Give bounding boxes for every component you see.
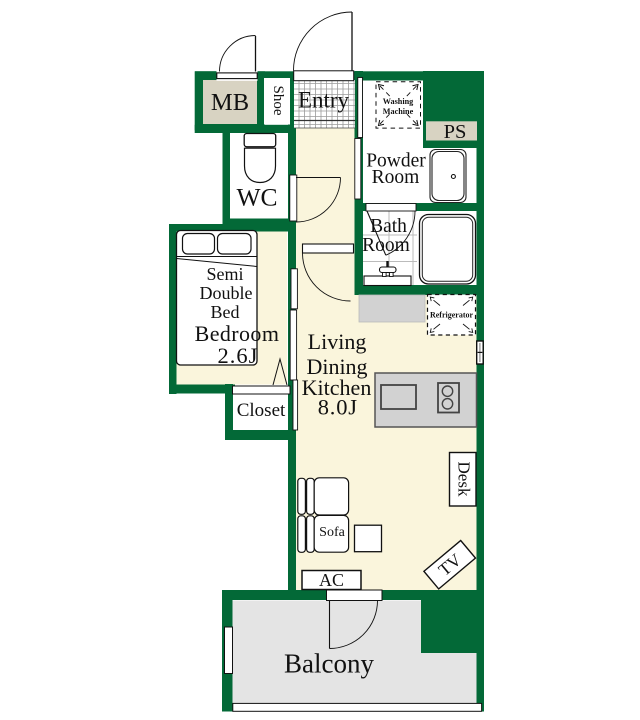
svg-text:Washing: Washing	[383, 97, 414, 106]
svg-text:Sofa: Sofa	[319, 525, 345, 540]
svg-text:Balcony: Balcony	[284, 649, 374, 679]
svg-text:Shoe: Shoe	[270, 86, 286, 116]
svg-text:Refrigerator: Refrigerator	[430, 311, 474, 320]
svg-text:Room: Room	[372, 167, 420, 188]
svg-text:Bath: Bath	[370, 216, 407, 237]
svg-text:Bed: Bed	[211, 302, 240, 322]
svg-text:Double: Double	[200, 283, 253, 303]
svg-text:PS: PS	[444, 121, 467, 143]
svg-text:MB: MB	[211, 89, 249, 116]
svg-text:AC: AC	[319, 570, 344, 590]
svg-text:Living: Living	[308, 329, 367, 354]
svg-text:Semi: Semi	[206, 264, 243, 284]
svg-text:Entry: Entry	[298, 88, 350, 113]
svg-text:Desk: Desk	[455, 462, 474, 497]
svg-text:8.0J: 8.0J	[318, 395, 358, 420]
svg-text:Room: Room	[362, 235, 410, 256]
svg-text:2.6J: 2.6J	[218, 343, 259, 368]
svg-text:Machine: Machine	[383, 107, 414, 116]
svg-text:Closet: Closet	[237, 400, 286, 421]
svg-text:WC: WC	[236, 183, 277, 212]
